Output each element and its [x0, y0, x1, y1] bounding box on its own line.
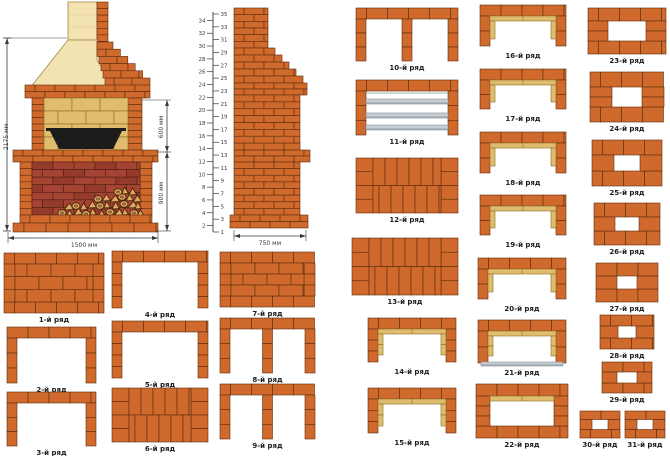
- row-16-diagram: [480, 5, 566, 46]
- ruler-number: 27: [221, 63, 228, 69]
- row-20-diagram: [478, 258, 566, 299]
- dim-total-height: 2175 мм: [3, 124, 10, 150]
- ruler-number: 34: [199, 18, 206, 24]
- ruler-number: 9: [221, 179, 225, 185]
- ruler-number: 16: [199, 134, 206, 140]
- ruler-number: 3: [221, 217, 225, 223]
- row-6-label: 6-й ряд: [145, 445, 176, 453]
- dim-base-height: 900 мм: [158, 182, 165, 204]
- row-19-label: 19-й ряд: [505, 241, 540, 249]
- ruler-number: 31: [221, 38, 228, 44]
- row-30-diagram: [580, 411, 620, 438]
- row-6-diagram: [112, 388, 208, 442]
- row-14-diagram: [368, 318, 456, 362]
- row-27-label: 27-й ряд: [609, 305, 644, 313]
- row-25-label: 25-й ряд: [609, 189, 644, 197]
- dim-depth: 750 мм: [259, 240, 281, 247]
- row-31-diagram: [625, 411, 665, 438]
- row-11-label: 11-й ряд: [389, 138, 424, 146]
- row-16-label: 16-й ряд: [505, 52, 540, 60]
- side-dimensions: 750 мм: [234, 230, 306, 247]
- row-12-label: 12-й ряд: [389, 216, 424, 224]
- row-26-label: 26-й ряд: [609, 248, 644, 256]
- row-13-label: 13-й ряд: [387, 298, 422, 306]
- ruler-number: 35: [221, 12, 228, 18]
- ruler-number: 4: [202, 211, 206, 217]
- row-9-diagram: [220, 384, 315, 439]
- row-20-label: 20-й ряд: [504, 305, 539, 313]
- row-8-label: 8-й ряд: [252, 376, 283, 384]
- ruler-number: 5: [221, 204, 225, 210]
- ruler-number: 33: [221, 25, 228, 31]
- ruler-number: 2: [202, 224, 206, 230]
- ruler-number: 32: [199, 31, 206, 37]
- row-1-label: 1-й ряд: [39, 316, 70, 324]
- ruler-number: 19: [221, 115, 228, 121]
- row-31-label: 31-й ряд: [627, 441, 662, 449]
- ruler-number: 23: [221, 89, 228, 95]
- row-17-diagram: [480, 69, 566, 109]
- ruler-number: 11: [221, 166, 228, 172]
- row-4-diagram: [112, 251, 208, 308]
- ruler-number: 18: [199, 121, 206, 127]
- ruler-number: 10: [199, 172, 206, 178]
- row-22-diagram: [476, 384, 568, 438]
- ruler-number: 30: [199, 44, 206, 50]
- row-9-label: 9-й ряд: [252, 442, 283, 450]
- dim-width: 1500 мм: [71, 242, 97, 249]
- row-29-label: 29-й ряд: [609, 396, 644, 404]
- row-7-label: 7-й ряд: [252, 310, 283, 318]
- row-8-diagram: [220, 318, 315, 373]
- ruler-number: 14: [199, 147, 206, 153]
- row-22-label: 22-й ряд: [504, 441, 539, 449]
- row-15-label: 15-й ряд: [394, 439, 429, 447]
- ruler-number: 17: [221, 127, 228, 133]
- row-18-label: 18-й ряд: [505, 179, 540, 187]
- ruler-number: 29: [221, 50, 228, 56]
- ruler-number: 12: [199, 159, 206, 165]
- ruler-number: 26: [199, 70, 206, 76]
- row-3-label: 3-й ряд: [36, 449, 67, 456]
- row-19-diagram: [480, 195, 566, 235]
- row-28-label: 28-й ряд: [609, 352, 644, 360]
- row-23-diagram: [588, 8, 666, 54]
- dim-firebox-height: 600 мм: [158, 116, 165, 138]
- row-11-diagram: [356, 80, 458, 135]
- diagram-canvas: 2175 мм600 мм900 мм1500 мм12345678910111…: [0, 0, 670, 456]
- row-27-diagram: [596, 263, 658, 302]
- row-1-diagram: [4, 253, 104, 313]
- row-18-diagram: [480, 132, 566, 173]
- ruler-number: 15: [221, 140, 228, 146]
- row-10-label: 10-й ряд: [389, 64, 424, 72]
- ruler-number: 8: [202, 185, 206, 191]
- ruler-number: 28: [199, 57, 206, 63]
- ruler-number: 13: [221, 153, 228, 159]
- ruler-number: 22: [199, 95, 206, 101]
- row-13-diagram: [352, 238, 458, 295]
- row-14-label: 14-й ряд: [394, 368, 429, 376]
- ruler-number: 21: [221, 102, 228, 108]
- row-3-diagram: [7, 392, 96, 446]
- row-24-diagram: [590, 72, 664, 122]
- ruler-number: 20: [199, 108, 206, 114]
- row-10-diagram: [356, 8, 458, 61]
- row-21-diagram: [478, 320, 566, 366]
- row-4-label: 4-й ряд: [145, 311, 176, 319]
- ruler-number: 25: [221, 76, 228, 82]
- row-26-diagram: [594, 203, 660, 245]
- row-15-diagram: [368, 388, 456, 433]
- row-24-label: 24-й ряд: [609, 125, 644, 133]
- ruler-number: 24: [199, 83, 206, 89]
- row-25-diagram: [592, 140, 662, 186]
- ruler-number: 6: [202, 198, 206, 204]
- row-5-diagram: [112, 321, 208, 378]
- course-ruler: 1234567891011121314151617181920212223242…: [199, 12, 228, 236]
- row-7-diagram: [220, 252, 315, 307]
- row-30-label: 30-й ряд: [582, 441, 617, 449]
- front-view: 2175 мм600 мм900 мм1500 мм: [3, 2, 171, 249]
- side-view: 750 мм: [230, 8, 310, 247]
- row-29-diagram: [602, 362, 652, 393]
- row-21-label: 21-й ряд: [504, 369, 539, 377]
- row-23-label: 23-й ряд: [609, 57, 644, 65]
- row-28-diagram: [600, 315, 654, 349]
- row-17-label: 17-й ряд: [505, 115, 540, 123]
- row-12-diagram: [356, 158, 458, 213]
- bbq-masonry-plan: 2175 мм600 мм900 мм1500 мм12345678910111…: [0, 0, 670, 456]
- ruler-number: 1: [221, 230, 225, 236]
- ruler-number: 7: [221, 192, 225, 198]
- row-2-diagram: [7, 327, 96, 383]
